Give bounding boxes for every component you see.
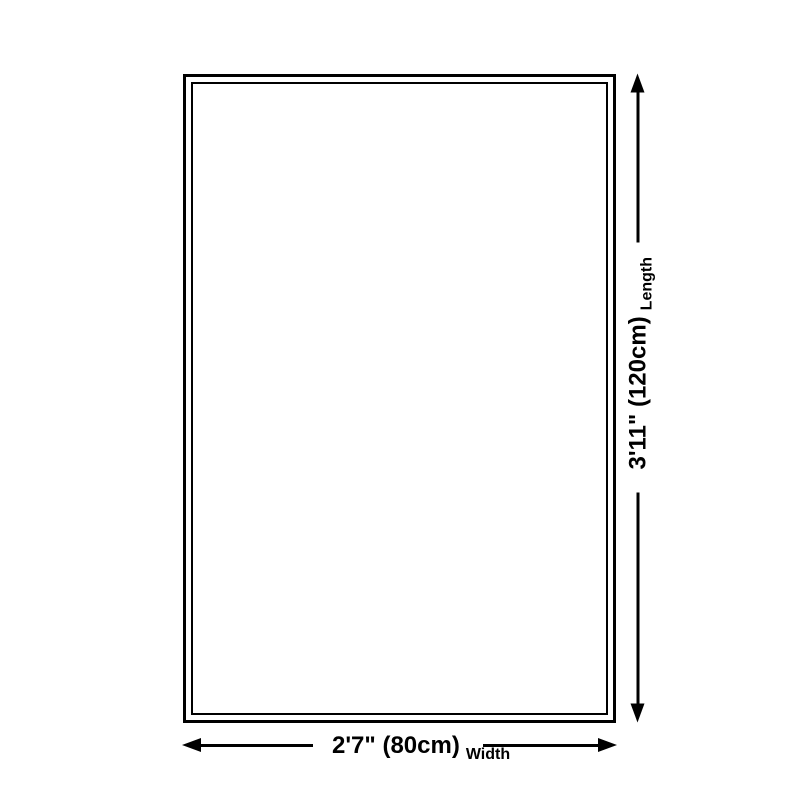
width-label: Width [466, 747, 510, 763]
rug-size-diagram: 3'11" (120cm) Length 2'7" (80cm) Width [0, 0, 800, 800]
arrow-up-icon [631, 74, 645, 93]
length-value: 3'11" (120cm) [627, 316, 651, 469]
width-value: 2'7" (80cm) [332, 734, 460, 758]
width-arrow-line-left [197, 744, 313, 747]
rug-outline-inner [191, 82, 608, 715]
arrow-right-icon [598, 738, 617, 752]
length-label-group: 3'11" (120cm) Length [617, 257, 661, 470]
rug-outline-outer [183, 74, 616, 723]
length-arrow-line-lower [637, 493, 640, 708]
length-dimension: 3'11" (120cm) Length [617, 74, 661, 723]
length-label: Length [640, 257, 656, 310]
width-dimension: 2'7" (80cm) Width [182, 724, 617, 768]
length-arrow-line-upper [637, 90, 640, 243]
width-label-group: 2'7" (80cm) Width [332, 724, 510, 768]
